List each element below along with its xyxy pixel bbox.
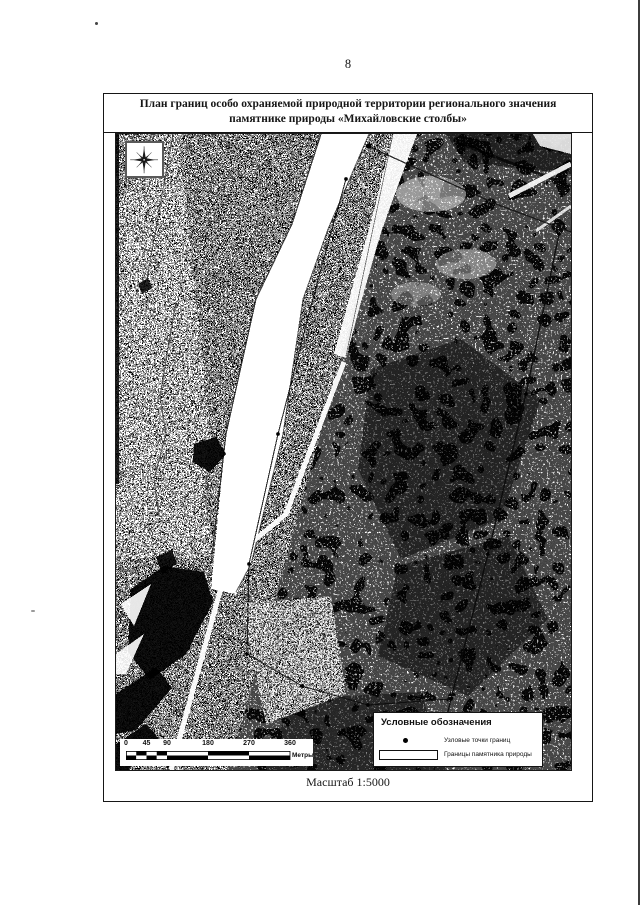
node-point-icon [403,738,408,743]
scan-speck [95,22,98,25]
aerial-photo-art [116,134,571,770]
legend-item-node-points: Узловые точки границ [374,733,542,747]
compass-rose-icon [125,141,164,178]
scale-tick: 45 [143,740,151,747]
legend-item-label: Узловые точки границ [444,737,510,744]
scale-tick: 180 [202,740,214,747]
legend-item-label: Границы памятника природы [444,751,532,758]
scale-bar-checker [126,751,291,760]
scale-tick: 90 [163,740,171,747]
legend-title: Условные обозначения [381,717,492,728]
aerial-map: 0 45 90 180 270 360 Метры [115,133,572,771]
scale-unit-label: Метры [292,752,314,759]
boundary-rectangle-icon [379,750,438,760]
scale-bar: 0 45 90 180 270 360 Метры [120,739,313,766]
plan-title: План границ особо охраняемой природной т… [104,94,592,133]
scanned-document-page: 8 План границ особо охраняемой природной… [0,0,640,905]
legend-item-boundary: Границы памятника природы [374,747,542,761]
scale-tick: 0 [124,740,128,747]
legend-box: Условные обозначения Узловые точки грани… [373,712,543,767]
scale-tick: 360 [284,740,296,747]
page-number: 8 [103,57,593,72]
map-scale-caption: Масштаб 1:5000 [104,775,592,790]
plan-outer-frame: План границ особо охраняемой природной т… [103,93,593,802]
scan-speck [31,610,35,612]
scale-tick: 270 [243,740,255,747]
